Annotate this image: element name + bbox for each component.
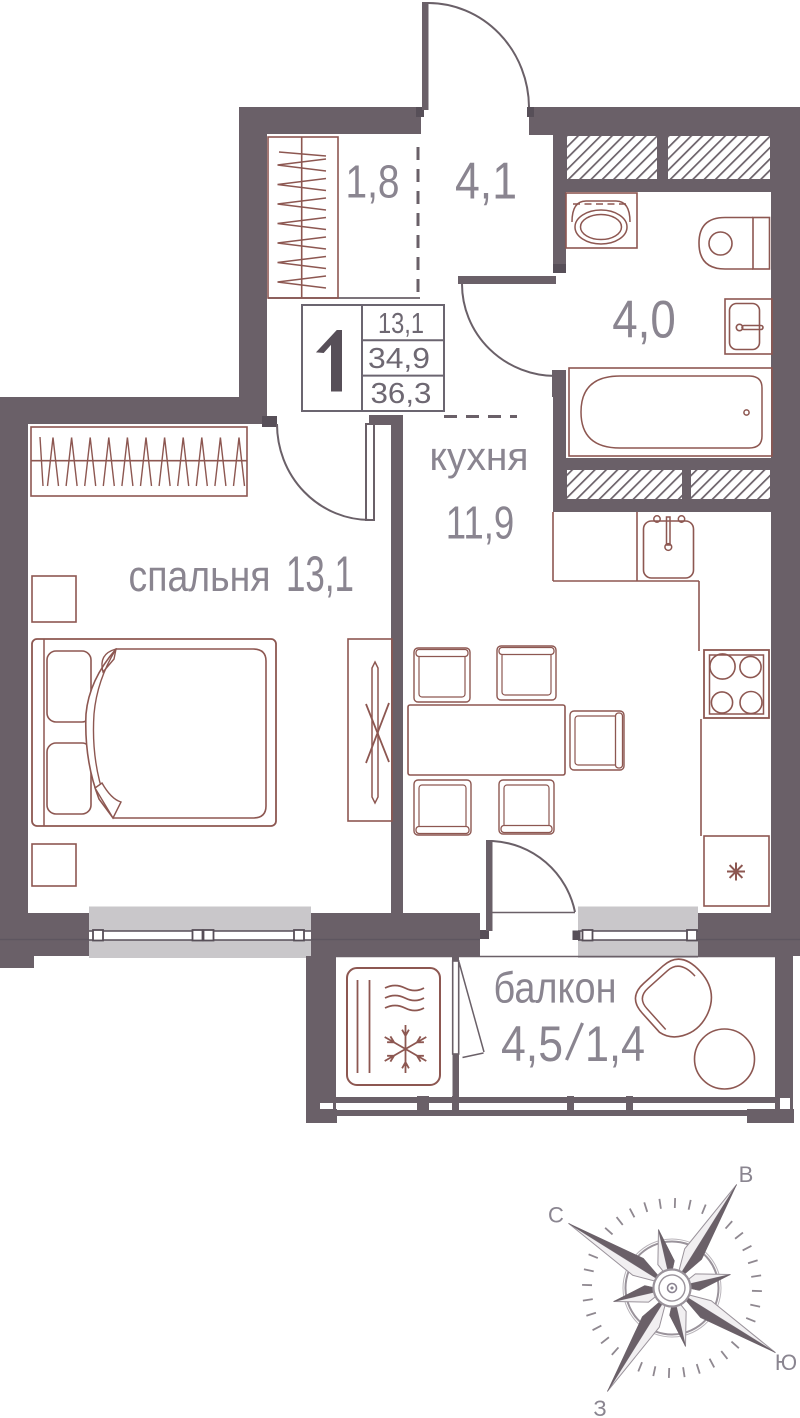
- svg-text:спальня: спальня: [129, 552, 271, 601]
- svg-text:В: В: [739, 1162, 754, 1187]
- svg-text:4,1: 4,1: [455, 153, 517, 211]
- svg-text:Ю: Ю: [775, 1350, 797, 1375]
- svg-text:С: С: [548, 1203, 564, 1228]
- svg-text:1,8: 1,8: [346, 156, 400, 208]
- svg-text:З: З: [593, 1396, 606, 1418]
- svg-text:34,9: 34,9: [368, 343, 430, 375]
- svg-text:1,4: 1,4: [585, 1016, 645, 1072]
- svg-text:11,9: 11,9: [446, 497, 515, 549]
- svg-text:13,1: 13,1: [286, 546, 354, 602]
- svg-text:кухня: кухня: [430, 435, 529, 479]
- svg-text:13,1: 13,1: [378, 308, 424, 340]
- svg-text:36,3: 36,3: [371, 378, 432, 410]
- svg-text:балкон: балкон: [494, 964, 617, 1013]
- svg-text:4,0: 4,0: [612, 291, 676, 350]
- svg-text:4,5: 4,5: [501, 1016, 563, 1072]
